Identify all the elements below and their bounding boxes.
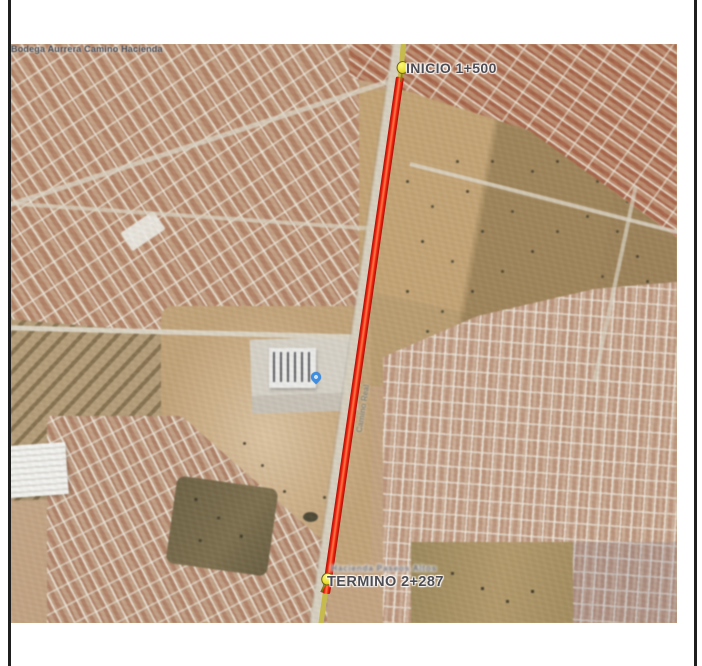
blurred-small-label: Hacienda Paseos Altos [331, 563, 437, 573]
terrain-imagery [11, 44, 677, 623]
document-page: INICIO 1+500 Hacienda Paseos Altos TERMI… [0, 0, 702, 666]
terrain-noise [11, 44, 677, 623]
place-name-label: Bodega Aurrera Camino Hacienda [11, 44, 153, 54]
route-end-label: TERMINO 2+287 [327, 574, 444, 590]
satellite-map-image: INICIO 1+500 Hacienda Paseos Altos TERMI… [11, 44, 677, 623]
route-start-label: INICIO 1+500 [406, 60, 497, 76]
page-border-right [694, 0, 697, 666]
